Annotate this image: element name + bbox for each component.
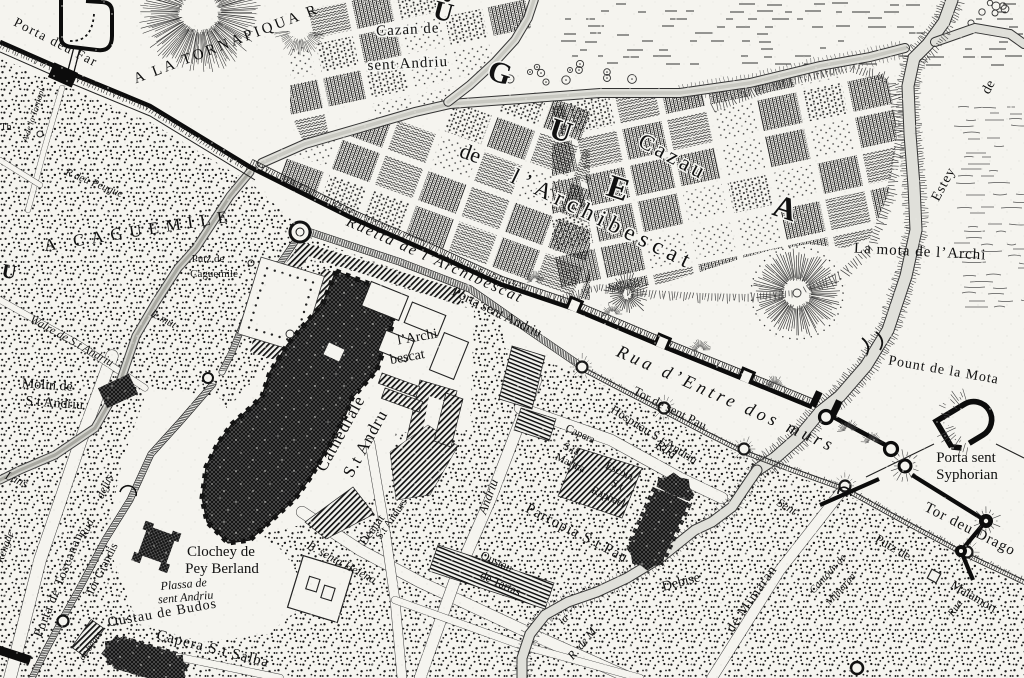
svg-text:Clochey de: Clochey de <box>187 544 255 560</box>
svg-text:Th: Th <box>0 122 11 133</box>
svg-text:Caguemile: Caguemile <box>190 268 238 280</box>
svg-text:Porta sent: Porta sent <box>936 450 996 466</box>
svg-text:Pey Berland: Pey Berland <box>185 561 259 577</box>
svg-text:Syphorian: Syphorian <box>936 467 998 483</box>
svg-text:Putz de: Putz de <box>192 253 225 265</box>
